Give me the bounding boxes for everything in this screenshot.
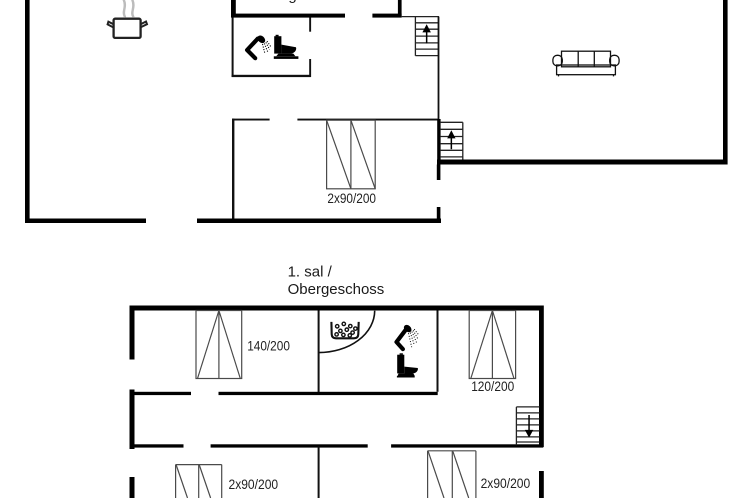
svg-text:1. sal /: 1. sal / [288,263,333,280]
svg-text:Obergeschoss: Obergeschoss [288,281,385,298]
svg-text:2x90/200: 2x90/200 [229,476,279,492]
svg-text:2x90/200: 2x90/200 [327,190,376,206]
svg-text:140/200: 140/200 [247,337,290,353]
svg-text:2x90/200: 2x90/200 [481,475,531,491]
svg-text:Erdgeschoss: Erdgeschoss [265,0,352,4]
svg-text:120/200: 120/200 [471,378,514,394]
